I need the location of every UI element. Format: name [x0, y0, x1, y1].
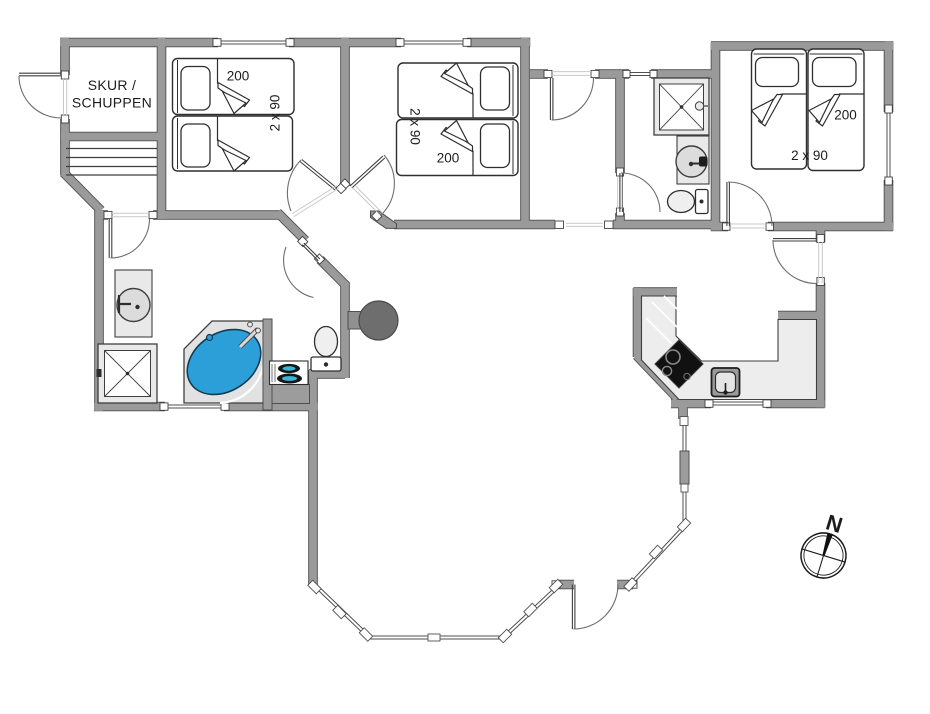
- svg-text:2 x 90: 2 x 90: [408, 108, 423, 145]
- svg-text:200: 200: [437, 151, 460, 166]
- svg-text:SCHUPPEN: SCHUPPEN: [72, 95, 152, 111]
- svg-text:2 x 90: 2 x 90: [268, 95, 283, 132]
- svg-text:2 x 90: 2 x 90: [791, 148, 828, 163]
- svg-text:200: 200: [227, 69, 250, 84]
- svg-text:200: 200: [834, 108, 857, 123]
- svg-text:SKUR /: SKUR /: [88, 77, 136, 93]
